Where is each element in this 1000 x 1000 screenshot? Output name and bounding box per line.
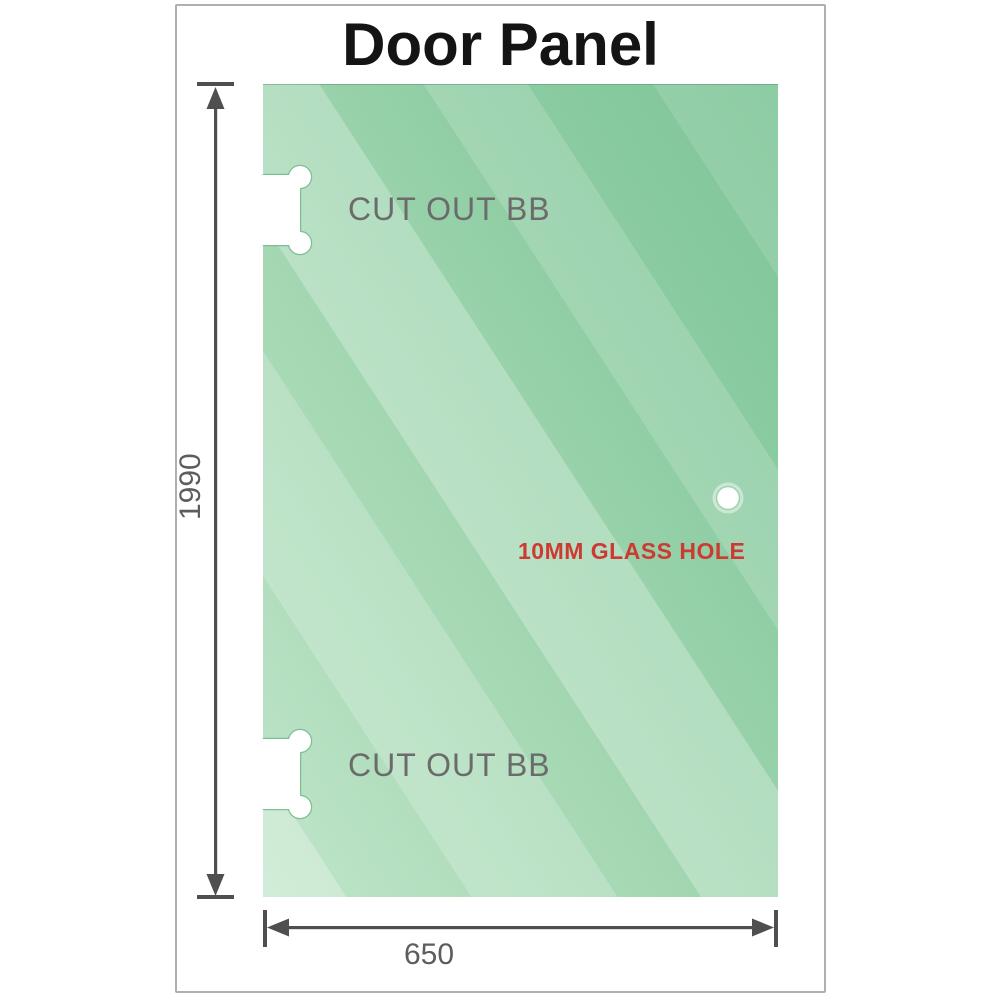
diagram-title: Door Panel [175, 13, 826, 76]
cutout-top-label: CUT OUT BB [348, 194, 551, 224]
height-dimension-value: 1990 [174, 458, 208, 520]
cutout-bottom-label: CUT OUT BB [348, 750, 551, 780]
glass-hole-label: 10MM GLASS HOLE [518, 538, 745, 565]
door-panel-diagram: Door Panel [0, 0, 1000, 1000]
width-dimension-value: 650 [389, 939, 469, 971]
